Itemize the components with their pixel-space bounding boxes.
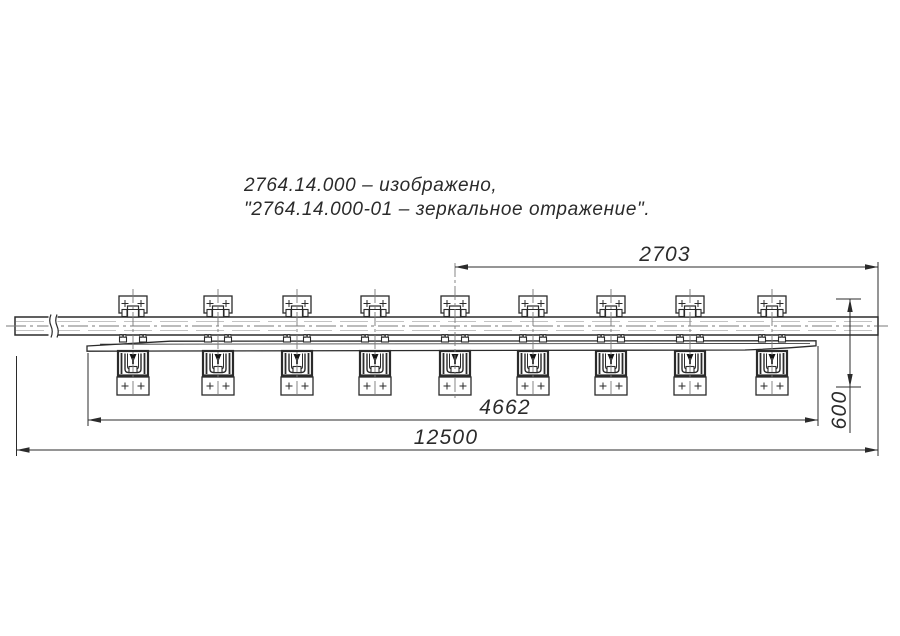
track-plan-drawing	[0, 0, 900, 636]
dimension-guard-rail-span: 4662	[479, 396, 531, 420]
note-line-2: "2764.14.000-01 – зеркальное отражение".	[244, 199, 650, 221]
drawing-sheet: 2764.14.000 – изображено, "2764.14.000-0…	[0, 0, 900, 636]
rail-break-symbol	[49, 315, 59, 338]
note-line-1: 2764.14.000 – изображено,	[244, 175, 497, 197]
track-plan-svg	[0, 0, 900, 636]
guard-rail	[87, 341, 816, 351]
dimension-vertical-offset: 600	[828, 391, 852, 430]
dimension-overall-length: 12500	[414, 426, 478, 450]
dimension-top-span: 2703	[639, 243, 691, 267]
main-rail	[6, 317, 888, 335]
